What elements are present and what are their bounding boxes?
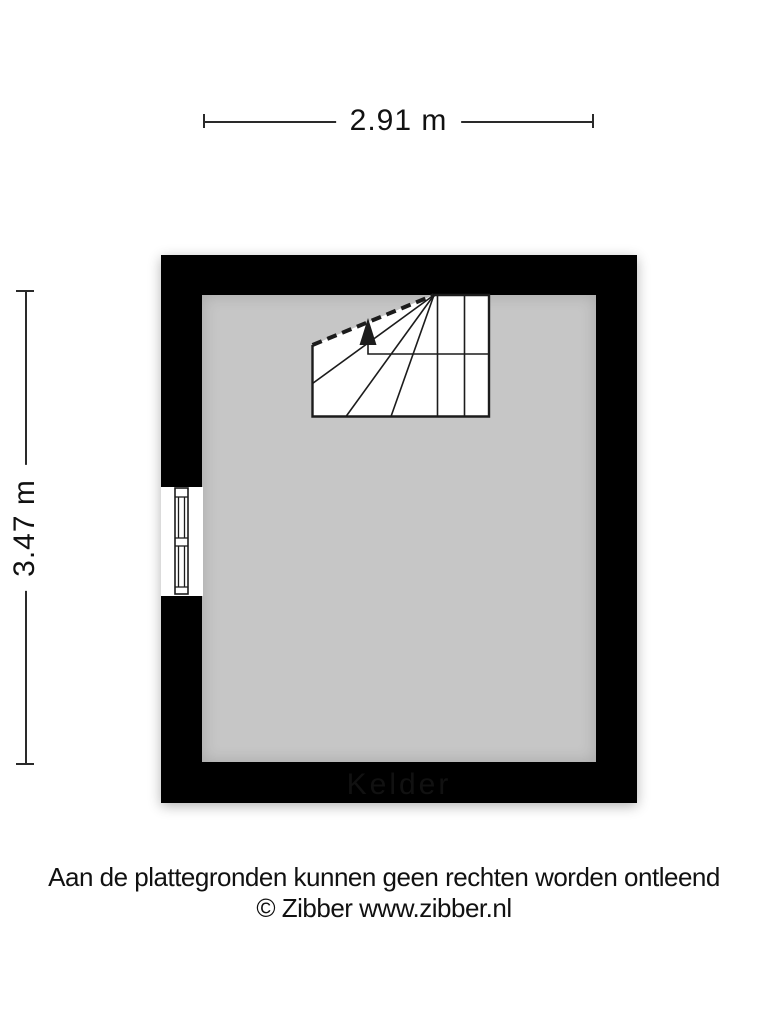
height-dimension: 3.47 m [8, 290, 42, 765]
staircase-icon [313, 295, 490, 417]
height-dimension-tick-bottom [16, 763, 34, 765]
width-dimension: 2.91 m [203, 105, 594, 137]
plan-symbols [161, 255, 637, 803]
floorplan-page: 2.91 m 3.47 m [0, 0, 768, 1024]
width-dimension-tick-left [203, 114, 205, 128]
height-dimension-tick-top [16, 290, 34, 292]
window-icon [161, 487, 203, 596]
footer: Aan de plattegronden kunnen geen rechten… [0, 862, 768, 924]
copyright-text: © Zibber www.zibber.nl [0, 893, 768, 924]
floorplan: Kelder [161, 255, 637, 803]
room-name-label: Kelder [202, 768, 596, 802]
height-dimension-label: 3.47 m [8, 465, 42, 591]
width-dimension-tick-right [592, 114, 594, 128]
width-dimension-label: 2.91 m [336, 104, 462, 138]
disclaimer-text: Aan de plattegronden kunnen geen rechten… [0, 862, 768, 893]
